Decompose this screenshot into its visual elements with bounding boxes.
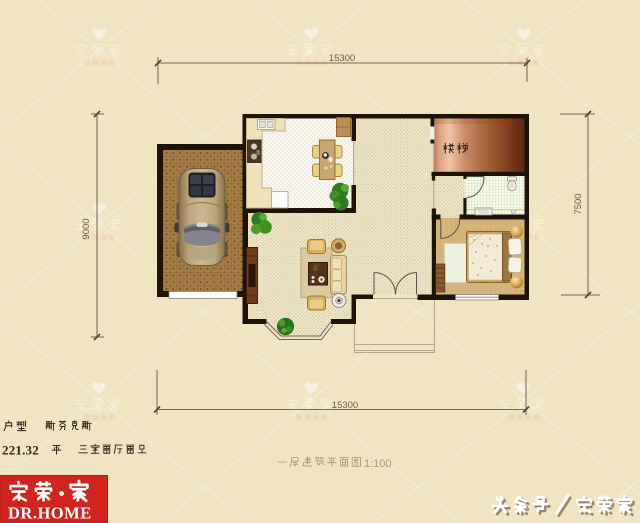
- svg-text:1:100: 1:100: [364, 458, 392, 470]
- svg-text:15300: 15300: [329, 53, 355, 64]
- svg-text:DR.HOME: DR.HOME: [8, 504, 92, 523]
- svg-text:7500: 7500: [573, 193, 584, 214]
- svg-text:221.32: 221.32: [2, 443, 39, 458]
- svg-text:9000: 9000: [81, 218, 92, 239]
- svg-text:15300: 15300: [332, 400, 358, 411]
